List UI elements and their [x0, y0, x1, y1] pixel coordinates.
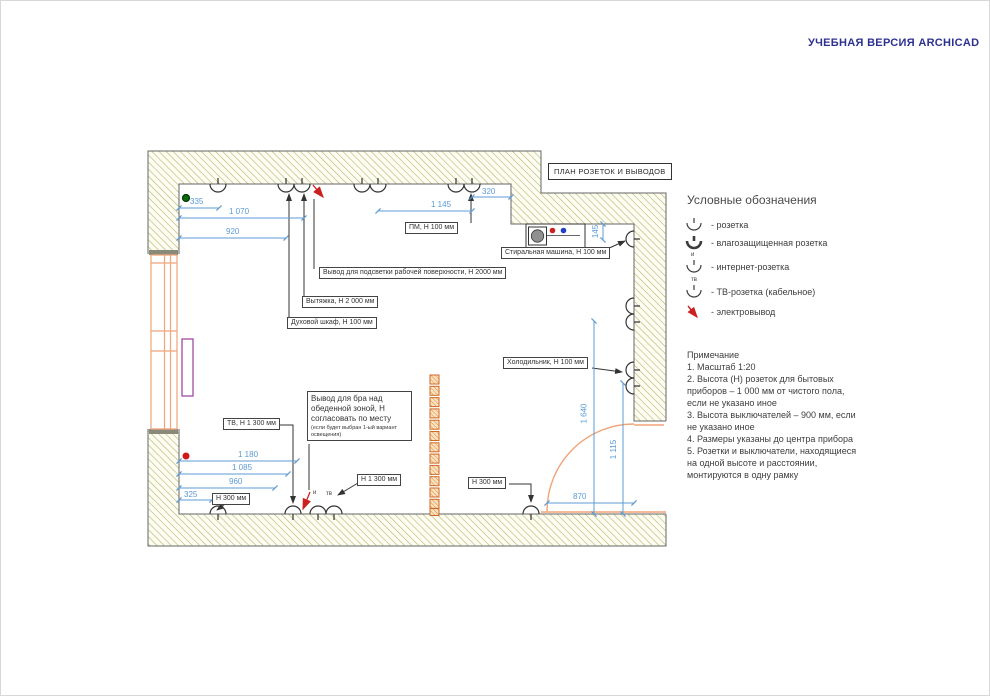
dimension-1115: 1 115	[609, 440, 618, 459]
hood-label: Вытяжка, Н 2 000 мм	[302, 296, 378, 308]
note-line: 2. Высота (Н) розеток для бытовых прибор…	[687, 373, 859, 409]
archicad-drawing: УЧЕБНАЯ ВЕРСИЯ ARCHICAD ПЛАН РОЗЕТОК И В…	[0, 0, 990, 696]
sconce-output-label: Вывод для бра над обеденной зоной, Н сог…	[307, 391, 412, 441]
window	[151, 255, 177, 429]
note-line: 5. Розетки и выключатели, находящиеся на…	[687, 445, 859, 481]
dimension-1145: 1 145	[431, 200, 451, 209]
note-line: 1. Масштаб 1:20	[687, 361, 859, 373]
note-line: 3. Высота выключателей – 900 мм, если не…	[687, 409, 859, 433]
socket-icon	[685, 217, 703, 233]
dimension-1070: 1 070	[229, 207, 249, 216]
dimension-320: 320	[482, 187, 495, 196]
internet-socket-mark: и	[313, 490, 316, 496]
sconce-output-text: Вывод для бра над обеденной зоной, Н сог…	[311, 394, 391, 423]
cold-water-dot-icon	[561, 228, 567, 234]
dimension-145: 145	[591, 225, 600, 238]
worktop-light-output-label: Вывод для подсветки рабочей поверхности,…	[319, 267, 506, 279]
dimension-920: 920	[226, 227, 239, 236]
notes-title: Примечание	[687, 349, 859, 361]
water-valve-icon	[531, 230, 543, 242]
plan-title-box: ПЛАН РОЗЕТОК И ВЫВОДОВ	[548, 163, 672, 180]
notes-block: Примечание 1. Масштаб 1:20 2. Высота (Н)…	[687, 349, 859, 481]
waterproof-socket-icon	[685, 235, 703, 251]
oven-label: Духовой шкаф, Н 100 мм	[287, 317, 377, 329]
internet-socket-icon: и	[685, 259, 703, 275]
dimension-1085: 1 085	[232, 463, 252, 472]
tv-socket-icon: тв	[685, 284, 703, 300]
tv-socket-label: ТВ, Н 1 300 мм	[223, 418, 280, 430]
dishwasher-label: ПМ, Н 100 мм	[405, 222, 458, 234]
dimension-1180: 1 180	[238, 450, 258, 459]
radiator	[182, 339, 193, 396]
electrical-outlet-arrow-icon	[313, 185, 323, 197]
h1300-bottom-label: Н 1 300 мм	[357, 474, 401, 486]
hot-water-dot-icon	[550, 228, 556, 234]
dimension-870: 870	[573, 492, 586, 501]
h300-right-label: Н 300 мм	[468, 477, 506, 489]
h300-left-label: Н 300 мм	[212, 493, 250, 505]
electrical-outlet-arrow-icon	[303, 492, 310, 509]
archicad-trial-watermark: УЧЕБНАЯ ВЕРСИЯ ARCHICAD	[808, 37, 979, 49]
refrigerator-label: Холодильник, Н 100 мм	[503, 357, 588, 369]
dimension-325: 325	[184, 490, 197, 499]
legend-item-tv-socket: тв - ТВ-розетка (кабельное)	[685, 284, 815, 300]
green-dot-icon	[183, 195, 190, 202]
electrical-outlet-arrows	[303, 185, 323, 509]
dimension-1640: 1 640	[580, 403, 589, 423]
legend-item-internet-socket: и - интернет-розетка	[685, 259, 789, 275]
sconce-output-note: (если будет выбран 1-ый вариант освещени…	[311, 425, 408, 438]
note-line: 4. Размеры указаны до центра прибора	[687, 433, 859, 445]
window-jamb-cap	[149, 429, 178, 434]
walls	[148, 151, 666, 546]
red-dot-icon	[183, 453, 190, 460]
partition-column	[430, 375, 439, 516]
window-jamb-cap	[149, 250, 178, 255]
legend-item-electrical-outlet: - электровывод	[685, 304, 775, 320]
door	[541, 424, 666, 512]
washing-machine-label: Стиральная машина, Н 100 мм	[501, 247, 610, 259]
tv-socket-mark: тв	[326, 491, 332, 497]
legend-title: Условные обозначения	[687, 193, 817, 207]
dimension-335: 335	[190, 197, 203, 206]
electrical-outlet-arrow-icon	[685, 304, 703, 320]
legend-item-waterproof-socket: - влагозащищенная розетка	[685, 235, 827, 251]
dimension-960: 960	[229, 477, 242, 486]
legend-item-socket: - розетка	[685, 217, 748, 233]
